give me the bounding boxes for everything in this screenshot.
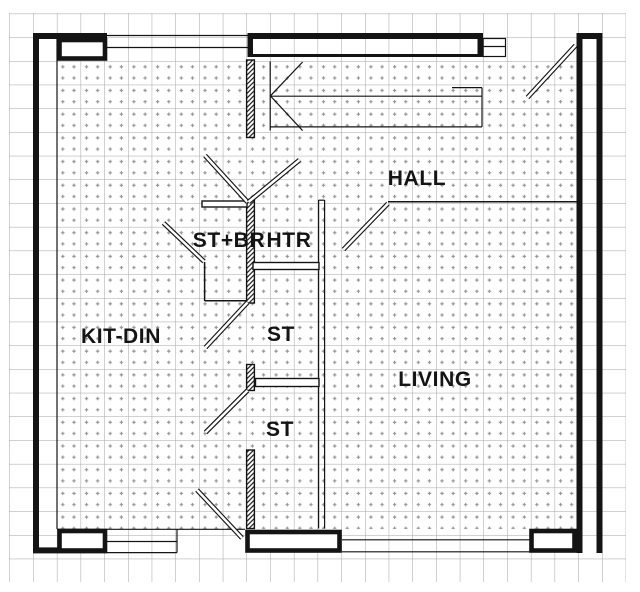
room-label-st-upper: ST xyxy=(267,323,295,346)
pier-top-left xyxy=(60,40,106,59)
pier-bottom-right xyxy=(532,531,575,551)
floor-plan-screenshot: HALL ST+BR HTR KIT-DIN ST ST LIVING xyxy=(0,0,640,592)
floor-plan-drawing: HALL ST+BR HTR KIT-DIN ST ST LIVING xyxy=(0,0,640,592)
pier-bottom-left xyxy=(60,531,106,551)
shelf xyxy=(202,201,247,207)
floor-texture-dots xyxy=(58,59,577,529)
room-label-kit-din: KIT-DIN xyxy=(81,325,161,348)
room-label-st-br: ST+BR xyxy=(193,229,265,252)
pier-bottom-center xyxy=(248,532,340,551)
room-label-living: LIVING xyxy=(398,368,472,391)
top-wall-cap-left xyxy=(248,33,254,57)
room-label-st-lower: ST xyxy=(266,418,294,441)
top-wall-cap-right xyxy=(478,33,484,57)
shelf xyxy=(256,379,320,387)
left-wall xyxy=(33,33,39,553)
room-label-htr: HTR xyxy=(267,229,312,252)
right-wall-outer xyxy=(597,33,603,553)
right-wall-top-connector xyxy=(577,33,603,39)
hatched-wall-segment xyxy=(247,450,255,529)
top-wall-outer xyxy=(248,33,484,39)
hatched-walls xyxy=(247,60,255,529)
hatched-wall-segment xyxy=(247,365,255,391)
hatched-wall-segment xyxy=(247,60,255,138)
room-label-hall: HALL xyxy=(388,167,446,190)
top-wall-inner xyxy=(248,54,484,57)
heater-shelf xyxy=(253,263,319,270)
right-wall-inner xyxy=(577,33,583,553)
